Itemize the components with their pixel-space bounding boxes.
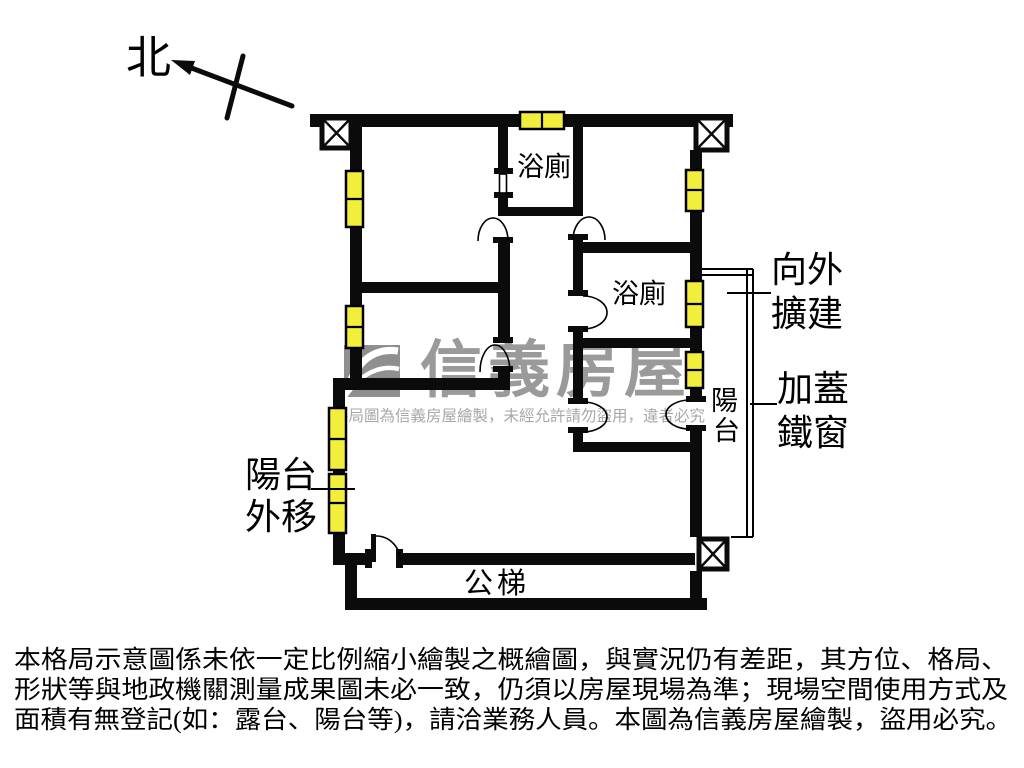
door-jamb [686,425,706,431]
wall [333,378,510,390]
windows [329,112,703,533]
window-marker [329,408,346,470]
bathroom-sliding-door [500,174,507,193]
door-jamb [494,168,513,174]
wall [573,127,583,216]
column-x-marker [322,118,351,148]
door-jamb [568,290,588,296]
wall [498,207,583,216]
north-compass: 北 [126,33,292,118]
public-stairs-label: 公梯 [464,567,530,600]
door-jamb [493,337,513,343]
wall [573,242,693,253]
wall [333,553,366,565]
door-jamb [568,234,588,240]
annotation-expand-line1: 向外 [771,250,843,290]
wall [690,150,702,171]
wall [350,226,362,307]
annotation-balcony-moved-line1: 陽台 [245,455,317,495]
balcony-right-label-char2: 台 [713,416,740,446]
window-marker [346,171,363,227]
door-jamb [568,398,588,404]
north-arrow-icon [171,56,292,118]
door-jamb [493,237,513,243]
annotation-expand-line2: 擴建 [771,294,843,334]
annotation-iron-line2: 鐵窗 [777,413,849,453]
window-marker [686,352,703,388]
wall [498,127,508,173]
door-jamb [686,396,706,402]
window-marker [520,112,564,129]
wall [333,532,345,553]
column-x-marker [699,539,727,569]
window-marker [686,281,703,327]
door-arc [583,296,607,329]
wall [362,282,508,293]
disclaimer-line3: 面積有無登記(如：露台、陽台等)，請洽業務人員。本圖為信義房屋繪製，盜用必究。 [14,706,1012,734]
wall [333,390,345,409]
window-marker [329,474,346,533]
annotation-balcony-moved-line2: 外移 [245,497,317,537]
wall [573,348,583,403]
disclaimer-line1: 本格局示意圖係未依一定比例縮小繪製之概繪圖，與實況仍有差距，其方位、格局、 [14,646,1008,674]
bathroom-middle-label: 浴廁 [612,279,666,309]
wall [402,553,695,565]
column-x-marker [696,118,727,150]
watermark-notice-text: 格局圖為信義房屋繪製，未經允許請勿盜用，違者必究 [333,406,705,425]
north-label: 北 [126,33,171,83]
wall [573,442,693,452]
wall [573,253,583,296]
floorplan-canvas: 信義房屋 格局圖為信義房屋繪製，未經允許請勿盜用，違者必究 [0,0,1024,768]
disclaimer-line2: 形狀等與地政機關測量成果圖未必一致，仍須以房屋現場為準；現場空間使用方式及 [14,676,1008,704]
wall [690,571,702,601]
annotation-iron-line1: 加蓋 [777,369,849,409]
door-jamb [365,549,372,568]
window-marker [686,170,703,211]
wall [573,338,693,348]
balcony-right-label-char1: 陽 [711,386,738,416]
bathroom-top-label: 浴廁 [517,152,571,182]
disclaimer: 本格局示意圖係未依一定比例縮小繪製之概繪圖，與實況仍有差距，其方位、格局、 形狀… [14,646,1012,734]
entry-door-leaf [371,534,376,562]
window-marker [346,306,363,348]
